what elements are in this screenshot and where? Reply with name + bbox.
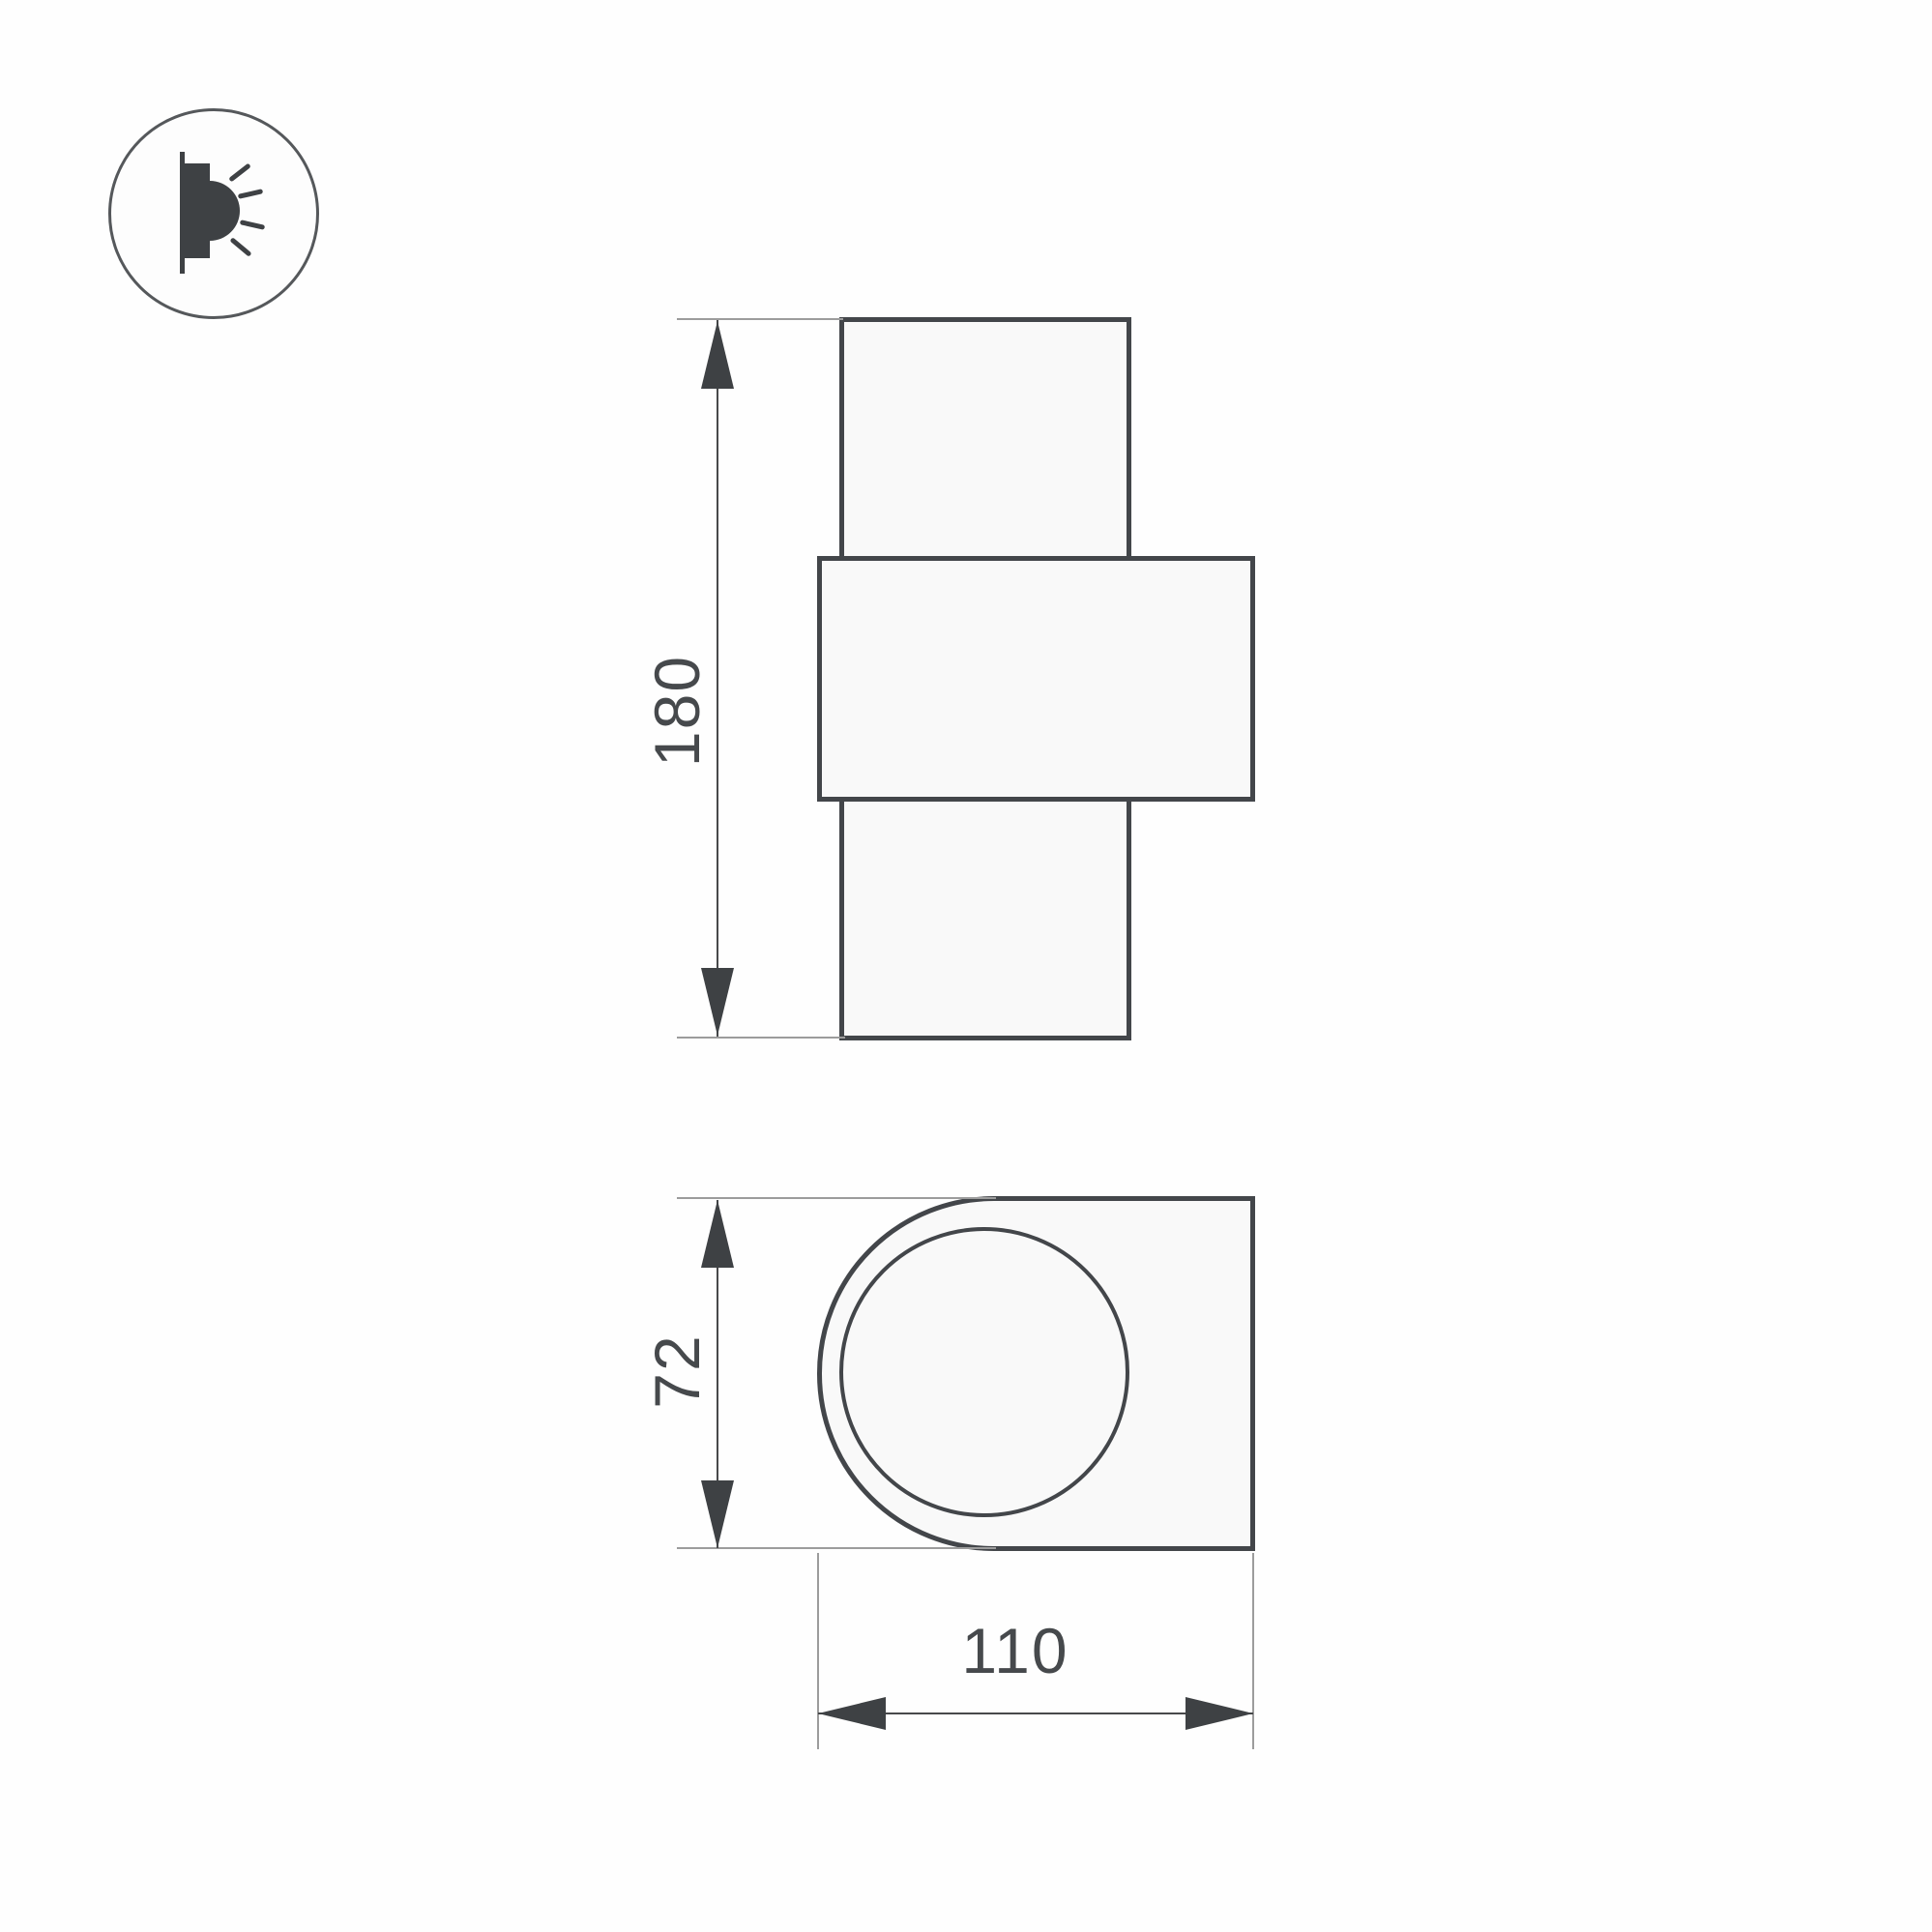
arrowhead-down-icon	[701, 968, 734, 1036]
extension-line-side-top	[677, 1197, 996, 1199]
arrowhead-left-icon	[818, 1697, 886, 1730]
extension-line-bottom	[677, 1037, 845, 1039]
dimension-line-height-180	[717, 320, 718, 1037]
arrowhead-right-icon	[1186, 1697, 1253, 1730]
side-view-lens-circle	[839, 1227, 1129, 1517]
front-view-bracket-outline	[817, 556, 1255, 802]
dimension-label-side-height: 72	[643, 1294, 711, 1449]
arrowhead-up-icon	[701, 321, 734, 389]
dimension-label-depth: 110	[919, 1617, 1112, 1684]
arrowhead-down-icon	[701, 1480, 734, 1548]
arrowhead-up-icon	[701, 1200, 734, 1268]
dimension-label-height: 180	[643, 633, 711, 788]
lamp-body-icon	[185, 163, 210, 258]
dimension-drawing-canvas: 180 72 110	[0, 0, 1932, 1932]
extension-line-top	[677, 318, 843, 320]
